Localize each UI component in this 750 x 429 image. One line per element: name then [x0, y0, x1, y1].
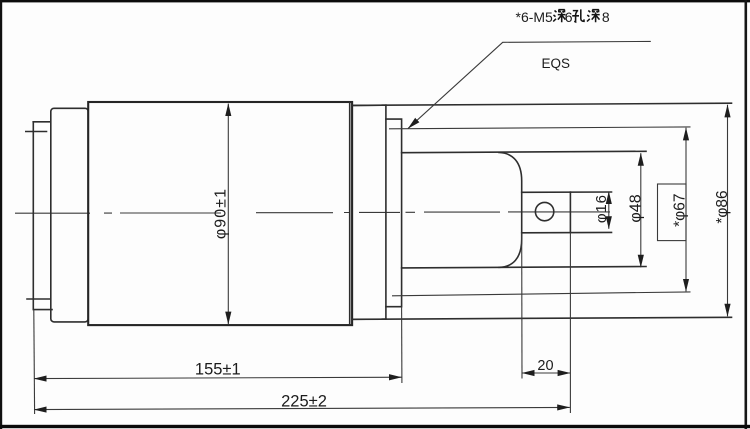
svg-text:*φ86: *φ86 [714, 190, 731, 223]
svg-text:20: 20 [537, 358, 553, 374]
svg-text:6: 6 [565, 9, 573, 25]
svg-text:φ48: φ48 [628, 194, 645, 222]
svg-text:*6-M5: *6-M5 [516, 9, 554, 25]
svg-text:225±2: 225±2 [281, 392, 327, 410]
svg-text:EQS: EQS [542, 56, 571, 71]
svg-text:*φ67: *φ67 [671, 194, 688, 227]
svg-text:155±1: 155±1 [195, 361, 241, 379]
svg-text:φ90±1: φ90±1 [213, 188, 230, 239]
svg-text:φ16: φ16 [593, 194, 610, 223]
svg-text:8: 8 [602, 9, 610, 25]
